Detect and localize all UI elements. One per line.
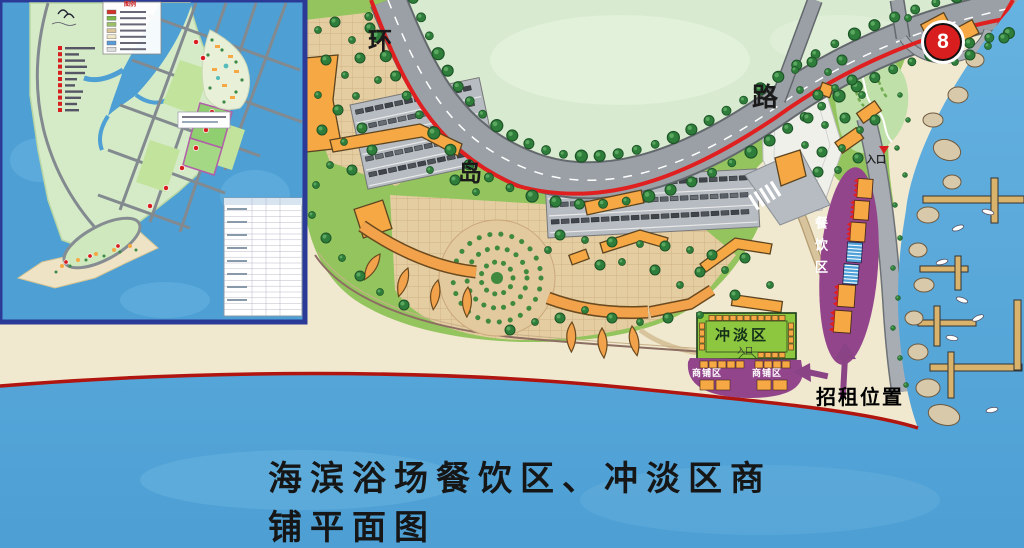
ring-road-label-char3: 路 xyxy=(752,84,778,110)
inset-legend-title: 图例 xyxy=(124,2,136,8)
ring-road-label-char2: 岛 xyxy=(458,162,482,186)
plan-title: 海滨浴场餐饮区、冲淡区商铺平面图 xyxy=(268,451,772,548)
dining-zone-label: 餐饮区 xyxy=(814,216,827,308)
route-8-badge: 8 xyxy=(924,23,962,61)
inset-legend xyxy=(103,2,161,54)
rental-location-label: 招租位置 xyxy=(816,381,904,410)
beach-entrance-label: 入口 xyxy=(866,156,886,166)
route-8-number: 8 xyxy=(937,30,949,54)
shop-zone-label-left: 商铺区 xyxy=(692,369,722,378)
rinse-zone-label: 冲淡区 xyxy=(715,328,769,343)
ring-road-label-char1: 环 xyxy=(368,30,392,54)
rinse-zone-entrance-label: 入口 xyxy=(737,347,753,355)
inset-overview-map xyxy=(0,0,305,322)
shop-zone-label-right: 商铺区 xyxy=(752,369,782,378)
inset-table xyxy=(224,198,302,316)
spiral-plaza xyxy=(439,220,555,336)
entrance-arrow-icon xyxy=(879,146,889,154)
beach-resort-plan: 环 岛 路 8 入口 餐饮区 冲淡区 入口 商铺区 商铺区 招租位置 海滨浴场餐… xyxy=(0,0,1024,548)
